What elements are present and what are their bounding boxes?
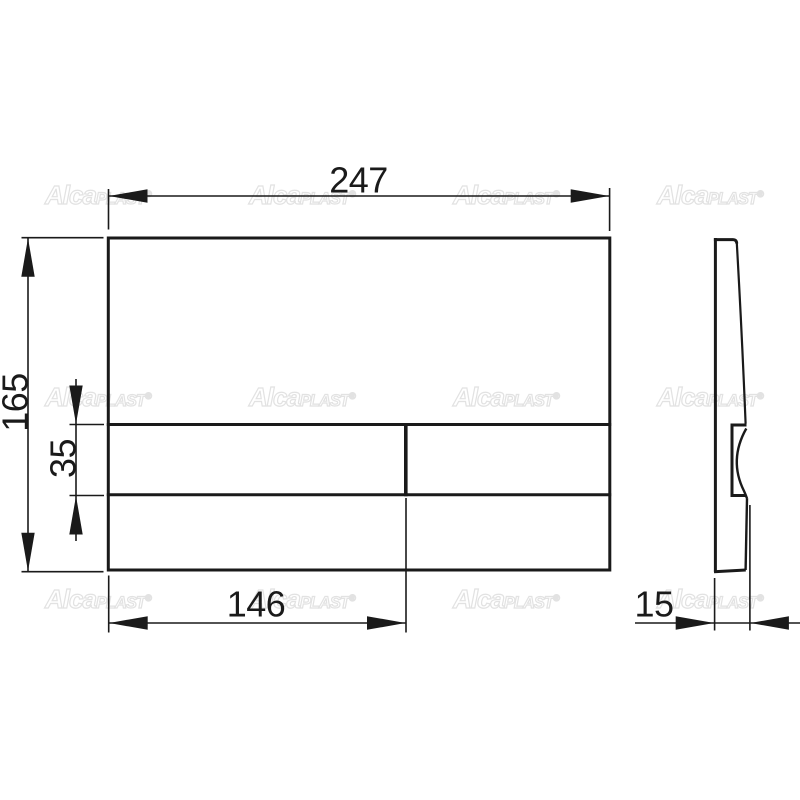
svg-text:146: 146 xyxy=(227,584,286,625)
svg-text:15: 15 xyxy=(634,584,673,625)
svg-text:165: 165 xyxy=(0,373,36,432)
svg-text:247: 247 xyxy=(329,160,388,201)
svg-text:35: 35 xyxy=(43,439,84,478)
